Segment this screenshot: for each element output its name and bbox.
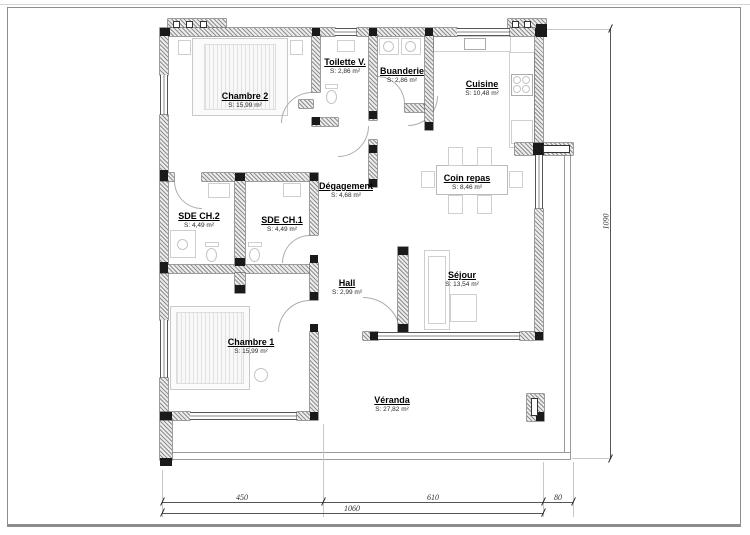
room-area: S: 2,86 m² [380, 77, 424, 85]
kitchen-sink [464, 38, 486, 50]
nightstand [290, 40, 303, 55]
sofa-cushion [428, 256, 446, 324]
veranda-pillar-slot [531, 398, 538, 416]
washbasin [337, 40, 355, 52]
room-label-coin-repas: Coin repas S: 8,46 m² [444, 173, 491, 192]
washbasin [283, 183, 301, 197]
room-label-chambre1: Chambre 1 S: 15,99 m² [228, 337, 275, 356]
room-label-toilette: Toilette V. S: 2,86 m² [324, 57, 366, 76]
chair [477, 195, 492, 214]
wall-sde-bottom [160, 265, 318, 273]
burner [513, 85, 521, 93]
rug [254, 368, 268, 382]
toilet-tank [325, 84, 338, 89]
wall-sde-divider [235, 181, 245, 265]
room-area: S: 4,49 m² [178, 222, 220, 230]
room-area: S: 10,48 m² [465, 90, 499, 98]
wall-hall-sejour [398, 247, 408, 332]
wall-top [160, 28, 335, 36]
room-label-sde-ch2: SDE CH.2 S: 4,49 m² [178, 211, 220, 230]
corner-post [160, 28, 170, 36]
corner-post [369, 111, 377, 119]
veranda-edge [172, 459, 571, 460]
wall-buanderie-right [425, 36, 433, 130]
corner-post [310, 173, 318, 181]
room-label-buanderie: Buanderie S: 2,86 m² [380, 66, 424, 85]
dim-line-bottom-1 [162, 502, 573, 503]
chair [448, 147, 463, 166]
room-area: S: 27,82 m² [374, 406, 410, 414]
window-coin-repas [535, 155, 543, 209]
sofa [450, 294, 477, 322]
vent-square [200, 21, 207, 28]
wall-left [160, 36, 168, 75]
burner [522, 76, 530, 84]
window-cuisine [457, 28, 510, 36]
corner-post [398, 247, 408, 255]
room-area: S: 2,86 m² [324, 68, 366, 76]
extension-line [573, 462, 574, 517]
room-area: S: 8,46 m² [444, 184, 491, 192]
corner-post [235, 285, 245, 293]
wall-left-stub [160, 420, 172, 460]
washbasin [208, 183, 230, 198]
vent-square [186, 21, 193, 28]
room-area: S: 2,99 m² [332, 289, 362, 297]
veranda-edge [172, 452, 570, 453]
corner-post [310, 324, 318, 332]
corner-post [310, 255, 318, 263]
window-toilette [335, 28, 357, 36]
room-name: Buanderie [380, 66, 424, 76]
corner-post [370, 332, 378, 340]
toilet-tank [205, 242, 219, 247]
chair [477, 147, 492, 166]
room-name: Hall [332, 278, 362, 288]
dim-label-80: 80 [554, 493, 562, 502]
room-name: Véranda [374, 395, 410, 405]
washer-door [405, 41, 416, 52]
nightstand [178, 40, 191, 55]
room-name: Coin repas [444, 173, 491, 183]
corner-post [160, 262, 168, 273]
wall-hall-left [310, 332, 318, 412]
burner [513, 76, 521, 84]
chair [421, 171, 435, 188]
room-label-sejour: Séjour S: 13,54 m² [445, 270, 479, 289]
room-name: Séjour [445, 270, 479, 280]
corner-post [425, 28, 433, 36]
burner [522, 85, 530, 93]
corner-post [369, 145, 377, 153]
room-name: Chambre 2 [222, 91, 269, 101]
corner-post [398, 324, 408, 332]
toilet-bowl [206, 248, 217, 262]
dim-label-610: 610 [427, 493, 439, 502]
wall-jog [299, 100, 313, 108]
corner-post [425, 122, 433, 130]
wall-hall-left [310, 173, 318, 235]
corner-post [235, 258, 245, 266]
wall-cuisine-right [535, 36, 543, 143]
wall-left [160, 378, 168, 412]
room-label-veranda: Véranda S: 27,82 m² [374, 395, 410, 414]
wall-right [535, 209, 543, 332]
window-chambre1 [160, 320, 168, 378]
corner-post [535, 332, 543, 340]
washer-door [383, 41, 394, 52]
toilet-tank [248, 242, 262, 247]
wall-buanderie-left [369, 36, 377, 120]
dim-label-1060: 1060 [344, 504, 360, 513]
chair [509, 171, 523, 188]
corner-post [160, 170, 168, 181]
room-area: S: 15,99 m² [228, 348, 275, 356]
wall-left [160, 115, 168, 173]
room-name: SDE CH.1 [261, 215, 303, 225]
room-label-cuisine: Cuisine S: 10,48 m² [465, 79, 499, 98]
vent-square [512, 21, 519, 28]
dim-line-bottom-2 [162, 513, 543, 514]
page-top-line [0, 4, 750, 5]
room-label-hall: Hall S: 2,99 m² [332, 278, 362, 297]
dim-line-right [610, 29, 611, 459]
corner-post [310, 292, 318, 300]
floor-plan-canvas: 450 610 80 1060 1090 Chambre 2 S: 15,99 … [0, 0, 750, 535]
window-chambre1-south [190, 412, 297, 420]
room-label-sde-ch1: SDE CH.1 S: 4,49 m² [261, 215, 303, 234]
room-area: S: 15,99 m² [222, 102, 269, 110]
room-name: Chambre 1 [228, 337, 275, 347]
corner-post [160, 412, 172, 420]
chair [448, 195, 463, 214]
room-name: SDE CH.2 [178, 211, 220, 221]
window-sejour [378, 332, 520, 340]
fridge [511, 120, 533, 144]
toilet-bowl [326, 90, 337, 104]
room-label-degagement: Dégagement S: 4,68 m² [319, 181, 373, 200]
room-area: S: 4,68 m² [319, 192, 373, 200]
shower-drain [177, 239, 188, 250]
wall-chambre2-right [312, 36, 320, 92]
dim-label-450: 450 [236, 493, 248, 502]
dim-label-1090: 1090 [602, 204, 611, 240]
room-name: Cuisine [465, 79, 499, 89]
extension-line [545, 29, 610, 30]
corner-post [535, 28, 543, 36]
vent-square [173, 21, 180, 28]
corner-post [160, 458, 172, 466]
veranda-edge [570, 150, 571, 460]
corner-post [369, 28, 377, 36]
window-step-slot [543, 145, 570, 153]
room-label-chambre2: Chambre 2 S: 15,99 m² [222, 91, 269, 110]
wall-sde-top [202, 173, 318, 181]
window-chambre2 [160, 75, 168, 115]
corner-post [310, 412, 318, 420]
corner-post [235, 173, 245, 181]
room-area: S: 13,54 m² [445, 281, 479, 289]
extension-line [572, 458, 610, 459]
corner-post [312, 117, 320, 125]
veranda-edge [564, 150, 565, 453]
wall-left [160, 273, 168, 320]
room-area: S: 4,49 m² [261, 226, 303, 234]
vent-square [524, 21, 531, 28]
room-name: Toilette V. [324, 57, 366, 67]
wall-left [160, 181, 168, 265]
corner-post [312, 28, 320, 36]
room-name: Dégagement [319, 181, 373, 191]
toilet-bowl [249, 248, 260, 262]
